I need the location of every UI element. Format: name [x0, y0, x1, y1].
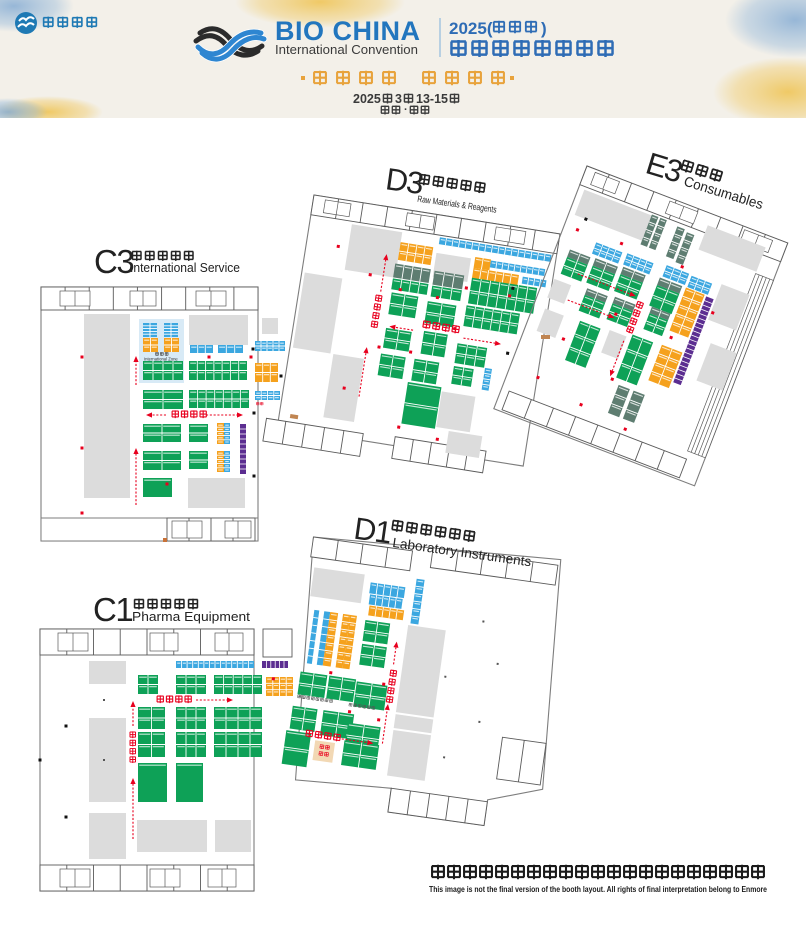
svg-text:C1: C1	[93, 591, 132, 628]
svg-text:International Service: International Service	[130, 261, 240, 275]
svg-text:·: ·	[404, 104, 408, 116]
svg-text:D1: D1	[352, 511, 393, 551]
svg-text:Pharma Equipment: Pharma Equipment	[132, 609, 250, 624]
svg-text:International Convention: International Convention	[275, 42, 418, 57]
svg-text:): )	[541, 19, 547, 38]
svg-text:2025(: 2025(	[449, 19, 493, 38]
svg-text:C3: C3	[94, 243, 133, 280]
svg-text:This image is not the final ve: This image is not the final version of t…	[429, 885, 767, 894]
svg-text:2025: 2025	[353, 92, 381, 106]
svg-text:3: 3	[395, 92, 402, 106]
svg-text:International Zone: International Zone	[144, 357, 178, 362]
svg-text:13-15: 13-15	[416, 92, 448, 106]
